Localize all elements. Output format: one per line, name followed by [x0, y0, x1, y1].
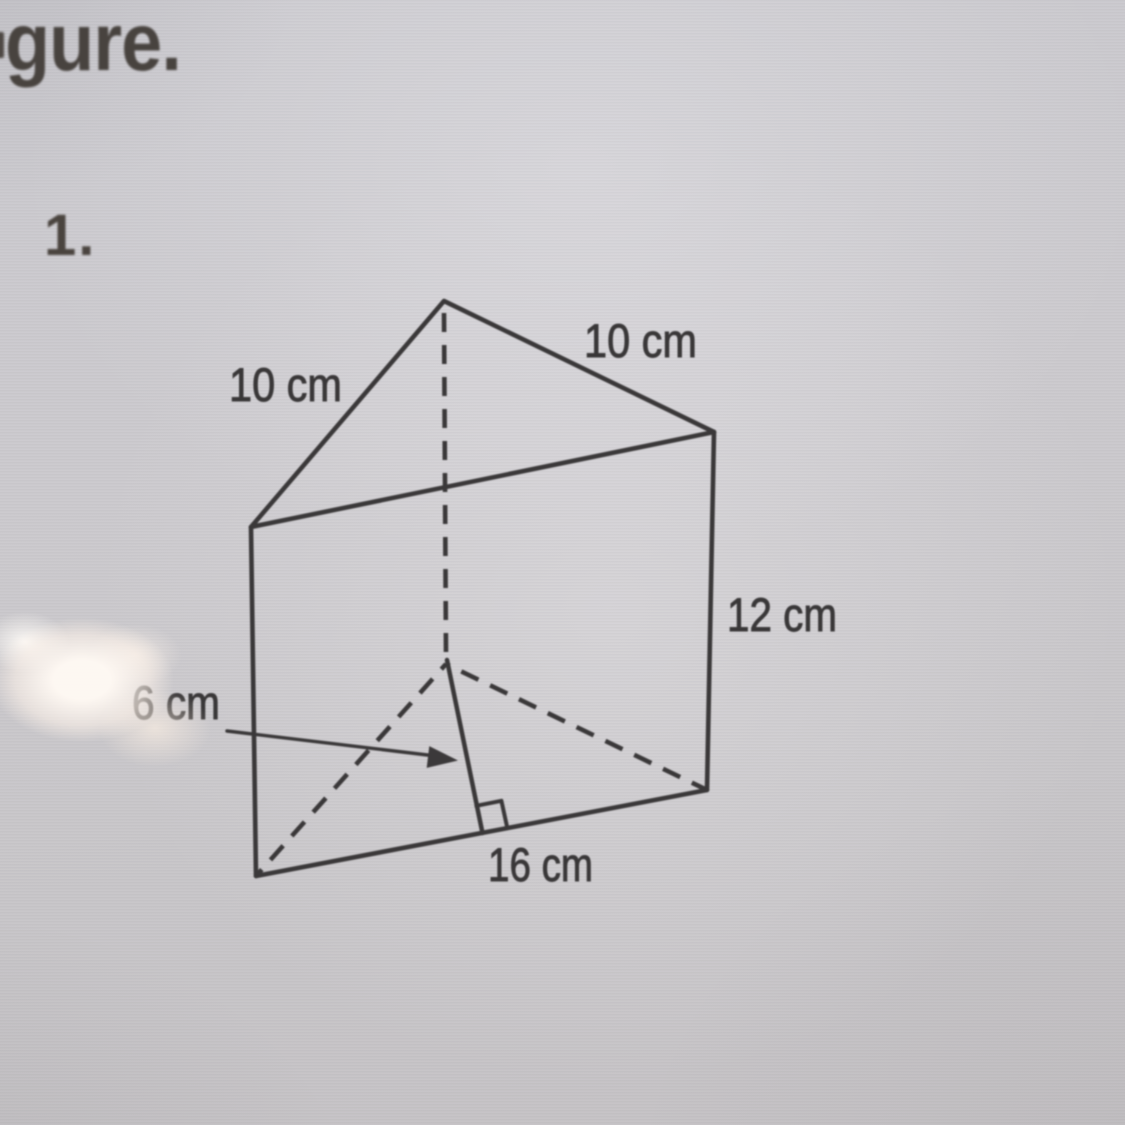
svg-text:12 cm: 12 cm [727, 588, 837, 641]
svg-text:10 cm: 10 cm [229, 358, 342, 411]
svg-text:16 cm: 16 cm [488, 838, 593, 891]
svg-text:6 cm: 6 cm [132, 676, 220, 729]
svg-text:10 cm: 10 cm [584, 314, 697, 367]
